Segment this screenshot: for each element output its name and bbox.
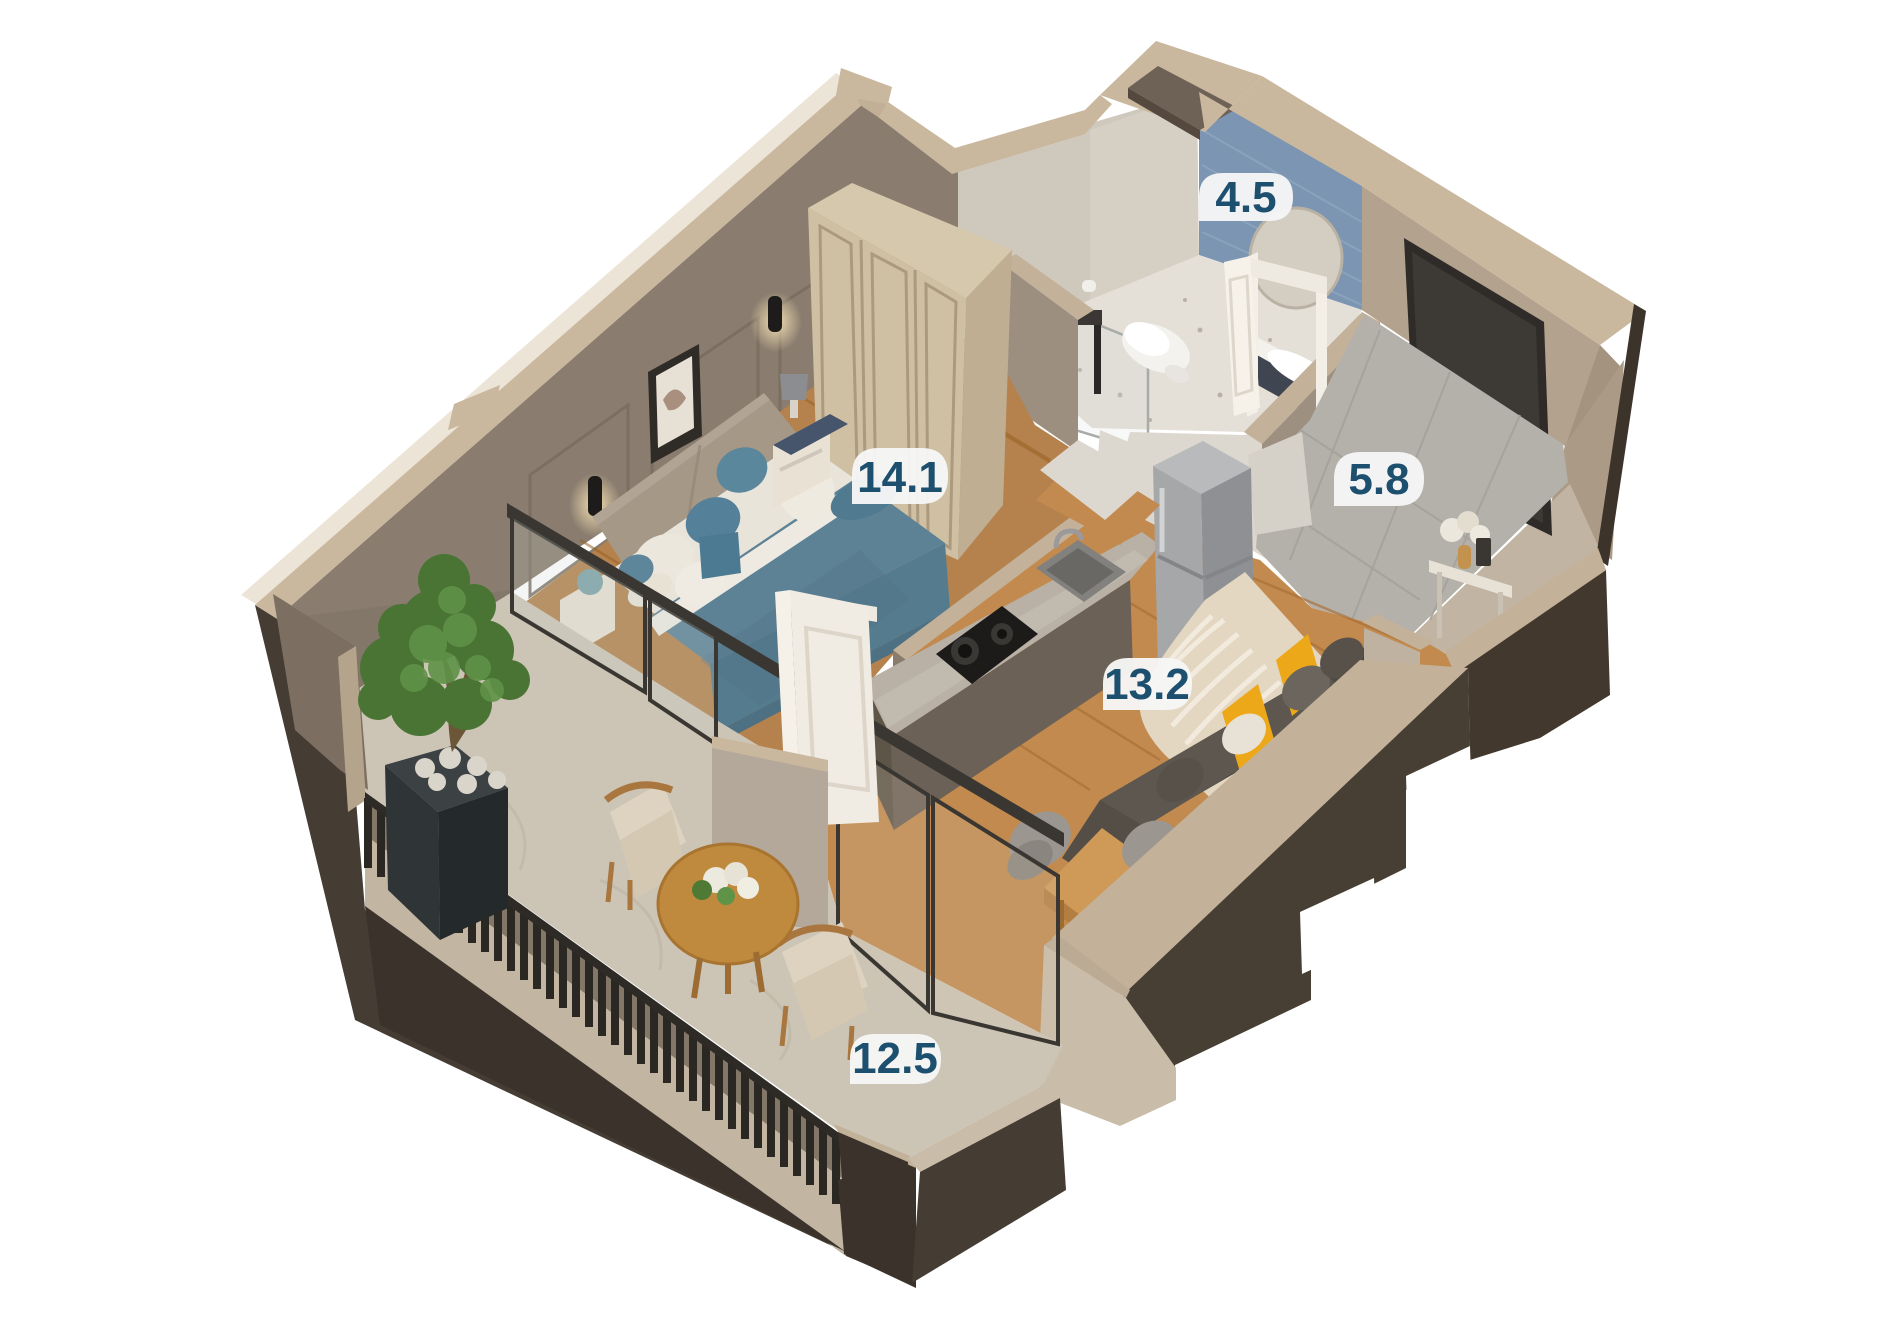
svg-text:4.5: 4.5 <box>1215 173 1276 222</box>
svg-text:13.2: 13.2 <box>1104 660 1190 709</box>
svg-text:5.8: 5.8 <box>1348 455 1409 504</box>
svg-text:14.1: 14.1 <box>857 453 943 502</box>
svg-text:12.5: 12.5 <box>852 1034 938 1083</box>
